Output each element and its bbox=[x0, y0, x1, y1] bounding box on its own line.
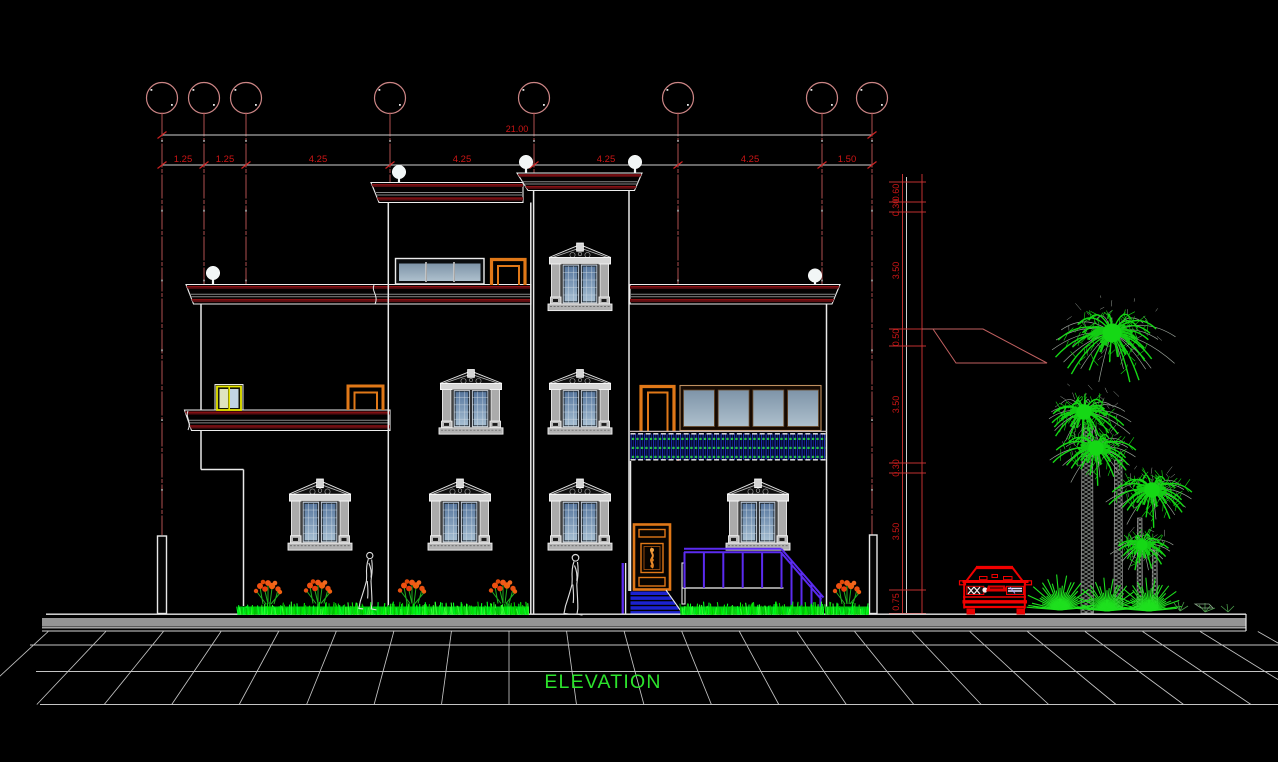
svg-text:0.30: 0.30 bbox=[891, 459, 901, 477]
svg-text:1.50: 1.50 bbox=[838, 154, 857, 165]
svg-text:0.60: 0.60 bbox=[891, 184, 901, 202]
svg-text:4.25: 4.25 bbox=[741, 154, 760, 165]
svg-text:0.75: 0.75 bbox=[891, 593, 901, 611]
svg-text:3.50: 3.50 bbox=[891, 396, 901, 414]
svg-text:3.50: 3.50 bbox=[891, 262, 901, 280]
svg-text:0.50: 0.50 bbox=[891, 329, 901, 347]
svg-text:1.25: 1.25 bbox=[216, 154, 235, 165]
svg-text:0.30: 0.30 bbox=[891, 199, 901, 217]
svg-text:1.25: 1.25 bbox=[174, 154, 193, 165]
svg-text:21.00: 21.00 bbox=[506, 124, 529, 134]
svg-text:4.25: 4.25 bbox=[597, 154, 616, 165]
svg-text:ELEVATION: ELEVATION bbox=[544, 671, 661, 693]
svg-text:3.50: 3.50 bbox=[891, 523, 901, 541]
svg-text:4.25: 4.25 bbox=[309, 154, 328, 165]
svg-text:4.25: 4.25 bbox=[453, 154, 472, 165]
